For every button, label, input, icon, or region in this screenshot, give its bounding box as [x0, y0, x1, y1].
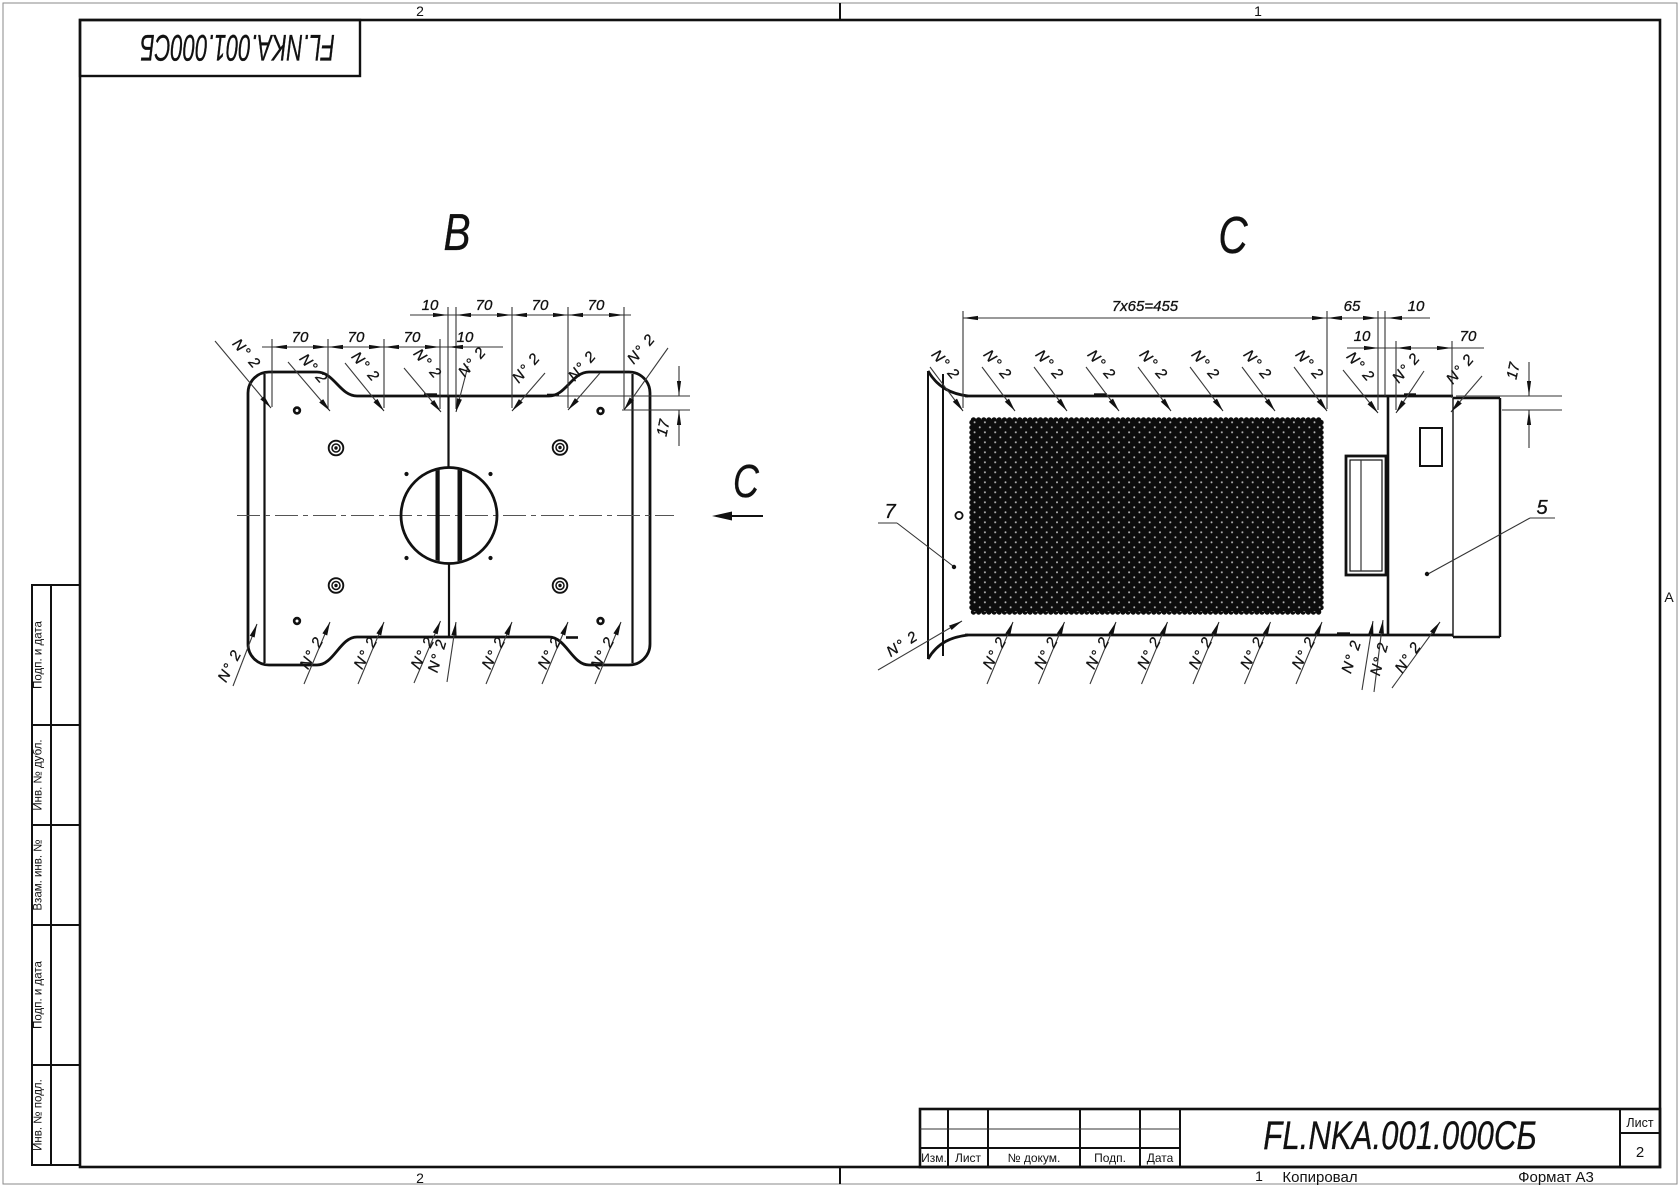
svg-text:2: 2 — [416, 1170, 424, 1186]
svg-text:C: C — [1218, 206, 1248, 264]
svg-text:Изм.: Изм. — [921, 1151, 947, 1165]
svg-text:Дата: Дата — [1147, 1151, 1174, 1165]
svg-text:70: 70 — [292, 329, 309, 346]
svg-text:FL.NKA.001.000СБ: FL.NKA.001.000СБ — [140, 27, 335, 68]
svg-text:70: 70 — [404, 329, 421, 346]
svg-text:FL.NKA.001.000СБ: FL.NKA.001.000СБ — [1263, 1113, 1536, 1158]
svg-text:Подп. и дата: Подп. и дата — [33, 961, 45, 1029]
svg-text:B: B — [443, 203, 470, 261]
svg-text:2: 2 — [416, 3, 424, 19]
svg-text:70: 70 — [588, 297, 605, 314]
svg-text:7x65=455: 7x65=455 — [1112, 298, 1179, 315]
svg-text:70: 70 — [476, 297, 493, 314]
svg-text:Лист: Лист — [1626, 1116, 1653, 1130]
svg-text:7: 7 — [884, 501, 896, 523]
svg-text:А: А — [1664, 589, 1674, 605]
svg-text:Инв. № подл.: Инв. № подл. — [33, 1079, 45, 1151]
svg-text:65: 65 — [1344, 298, 1361, 315]
svg-text:2: 2 — [1636, 1144, 1644, 1161]
svg-text:70: 70 — [348, 329, 365, 346]
svg-text:5: 5 — [1536, 497, 1548, 519]
svg-text:Подп. и дата: Подп. и дата — [33, 621, 45, 689]
svg-text:Инв. № дубл.: Инв. № дубл. — [33, 739, 45, 810]
svg-text:Взам. инв. №: Взам. инв. № — [33, 839, 45, 910]
svg-text:Копировал: Копировал — [1282, 1169, 1357, 1186]
svg-text:70: 70 — [1460, 328, 1477, 345]
svg-text:1: 1 — [1254, 3, 1262, 19]
svg-text:70: 70 — [532, 297, 549, 314]
svg-text:10: 10 — [1408, 298, 1425, 315]
svg-text:1: 1 — [1255, 1168, 1263, 1184]
svg-text:Формат А3: Формат А3 — [1518, 1169, 1594, 1186]
svg-text:C: C — [733, 456, 760, 507]
svg-text:10: 10 — [422, 297, 439, 314]
svg-text:№ докум.: № докум. — [1008, 1151, 1061, 1165]
svg-text:10: 10 — [457, 329, 474, 346]
svg-text:Лист: Лист — [955, 1151, 982, 1165]
svg-text:Подп.: Подп. — [1094, 1151, 1126, 1165]
svg-text:10: 10 — [1354, 328, 1371, 345]
